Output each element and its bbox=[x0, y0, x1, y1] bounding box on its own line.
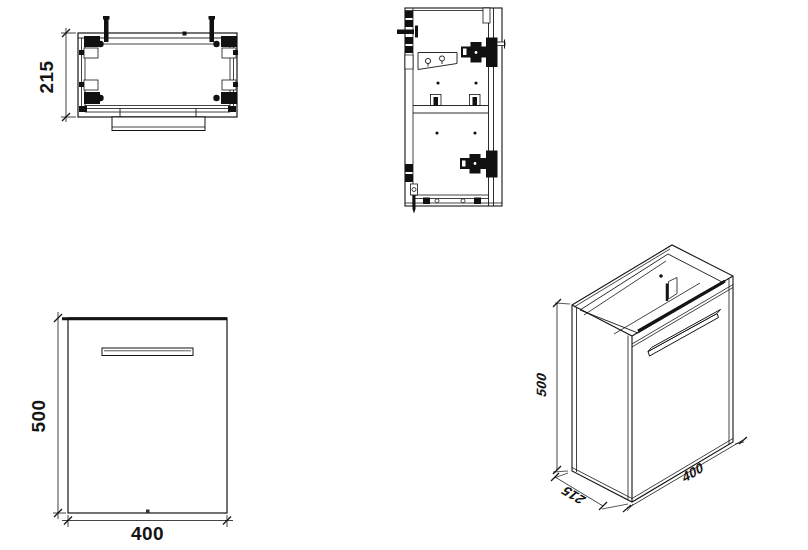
top-view-depth-dimension-label: 215 bbox=[36, 60, 57, 93]
top-view-right-hinge-block-2 bbox=[221, 92, 237, 104]
side-view-shelf-support-2-pin bbox=[473, 97, 478, 106]
top-view-left-hinge-plate-1 bbox=[84, 48, 98, 58]
iso-depth-dimension-label: 215 bbox=[557, 484, 589, 507]
side-view-top-bracket bbox=[483, 8, 490, 23]
side-view-upper-hinge-plate bbox=[486, 38, 498, 68]
side-view-door-pin bbox=[497, 42, 505, 46]
top-view-handle bbox=[112, 117, 205, 131]
front-view-height-dimension-label: 500 bbox=[28, 399, 49, 432]
side-view-hole-4 bbox=[473, 131, 476, 134]
side-view-bottom-hole-1 bbox=[435, 199, 439, 203]
iso-dim-width-tick-right bbox=[739, 437, 747, 444]
side-view-bottom-hole-2 bbox=[461, 199, 465, 203]
side-view-shelf-support-1-pin bbox=[434, 97, 439, 106]
iso-interior-hole bbox=[659, 274, 663, 278]
top-view-left-hinge-plate-2 bbox=[84, 80, 98, 90]
side-view-keyhole-1 bbox=[425, 58, 430, 63]
iso-dim-depth-ext-right bbox=[602, 504, 628, 509]
top-view-right-hinge-knob-1 bbox=[213, 41, 219, 47]
top-view-left-hinge-knob-1 bbox=[97, 41, 103, 47]
front-view: 500 400 bbox=[28, 312, 233, 544]
top-view-right-hinge-knob-2 bbox=[213, 95, 219, 101]
side-view-back-fitting-5 bbox=[405, 164, 413, 172]
front-view-door-outline bbox=[68, 318, 227, 513]
side-view-back-fitting-2 bbox=[405, 20, 413, 27]
top-view-right-pin bbox=[210, 18, 215, 42]
top-view-left-corner-block bbox=[79, 106, 87, 112]
top-view-left-fitting-2 bbox=[79, 82, 84, 87]
side-view-hole-2 bbox=[474, 81, 477, 84]
side-view-keyhole-2 bbox=[439, 56, 444, 61]
side-view-upper-hinge-detail-2 bbox=[475, 51, 478, 54]
side-view-back-plate bbox=[405, 55, 413, 69]
side-view-back-fitting-4 bbox=[405, 46, 413, 53]
side-view-lower-hinge-detail-2 bbox=[474, 162, 477, 165]
side-view-bottom-block-2 bbox=[474, 198, 481, 205]
top-view-left-pin bbox=[104, 18, 109, 42]
side-view-levelling-pin-tip bbox=[413, 209, 416, 214]
technical-drawing-canvas: 215 bbox=[0, 0, 808, 550]
top-view-right-hinge-block-1 bbox=[221, 36, 237, 47]
side-view-lower-hinge-plate bbox=[486, 151, 498, 178]
side-view-back-fitting-6 bbox=[405, 174, 413, 182]
top-view-right-pin-cap bbox=[209, 16, 216, 20]
side-view-back-fitting-1 bbox=[405, 11, 413, 18]
iso-height-dimension-label: 500 bbox=[533, 370, 549, 398]
front-view-width-dimension-label: 400 bbox=[131, 523, 164, 544]
top-view-left-hinge-knob-2 bbox=[97, 95, 103, 101]
side-view-back-fitting-3 bbox=[405, 37, 413, 44]
side-view bbox=[397, 8, 505, 214]
side-view-wall-pin bbox=[397, 30, 414, 35]
top-view-top-fastener bbox=[183, 32, 187, 36]
side-view-upper-hinge-detail-1 bbox=[463, 49, 467, 56]
front-view-bottom-mark bbox=[146, 510, 150, 514]
side-view-bottom-block-1 bbox=[423, 198, 430, 205]
side-view-hole-1 bbox=[436, 81, 439, 84]
top-view-left-pin-cap bbox=[103, 16, 110, 20]
front-view-handle bbox=[102, 348, 193, 356]
top-view-right-fitting-2 bbox=[233, 82, 238, 87]
top-view-right-corner-block bbox=[228, 106, 236, 112]
side-view-wall-pin-clamp bbox=[415, 26, 418, 38]
side-view-levelling-pin bbox=[413, 195, 416, 209]
top-view-left-fitting-1 bbox=[79, 50, 84, 55]
isometric-view: 500 215 400 bbox=[533, 245, 747, 512]
top-view-right-fitting-1 bbox=[233, 50, 238, 55]
side-view-bottom-left-hole bbox=[412, 188, 416, 192]
side-view-hole-3 bbox=[435, 131, 438, 134]
side-view-lower-hinge-detail-1 bbox=[462, 161, 466, 167]
iso-cabinet-silhouette bbox=[572, 245, 733, 502]
technical-drawing-sheet: 215 bbox=[0, 0, 808, 550]
top-view: 215 bbox=[36, 16, 238, 131]
